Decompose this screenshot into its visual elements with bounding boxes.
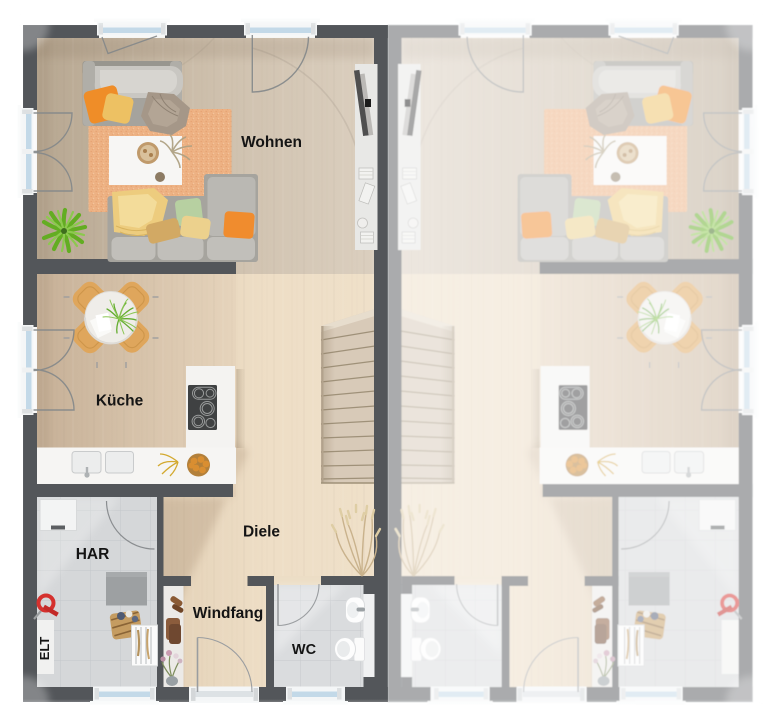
svg-text:WC: WC <box>292 642 317 658</box>
svg-text:Küche: Küche <box>96 393 144 410</box>
svg-text:Wohnen: Wohnen <box>241 134 302 151</box>
svg-text:ELT: ELT <box>37 637 52 661</box>
svg-text:Windfang: Windfang <box>193 605 263 622</box>
svg-text:Diele: Diele <box>243 524 280 541</box>
svg-text:HAR: HAR <box>76 546 110 563</box>
